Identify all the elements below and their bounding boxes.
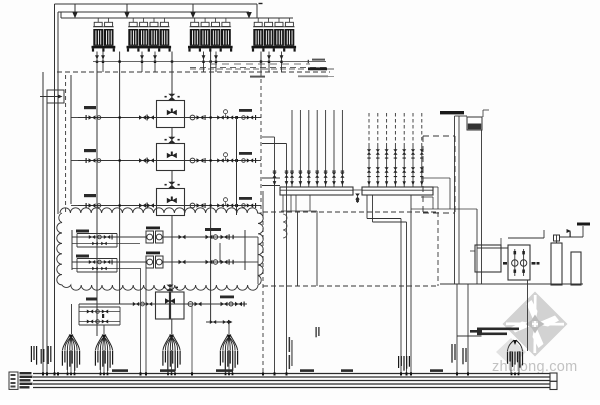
svg-text:zhulong.com: zhulong.com [492, 359, 578, 375]
